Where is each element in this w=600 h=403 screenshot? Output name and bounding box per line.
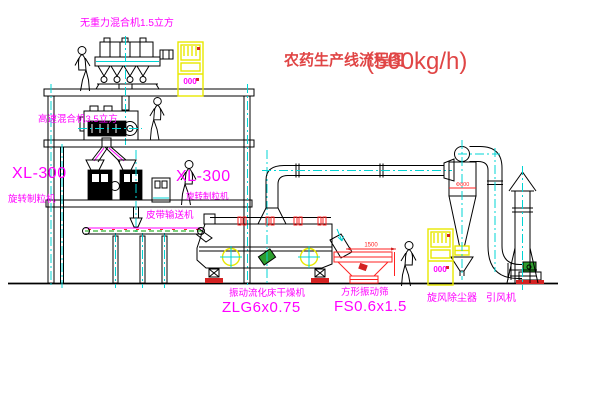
label-sifter-name: 方形振动筛 [341,286,389,298]
label-granulator-right-model: XL-300 [176,168,231,185]
person-figures [75,47,416,287]
label-gravity-mixer: 无重力混合机1.5立方 [80,16,174,29]
control-cabinet-left: 000 [178,42,203,96]
cabinet-left-display: 000 [183,77,197,86]
sifter-width-dim: 1500 [364,243,378,249]
belt-conveyor-drawing [83,228,213,243]
distribution-chutes [92,138,126,162]
exhaust-duct [258,164,452,225]
label-dryer-name: 振动流化床干燥机 [229,287,306,299]
label-fan: 引风机 [486,291,516,304]
label-belt-conveyor: 皮带输送机 [146,209,194,221]
label-cyclone: 旋风除尘器 [427,291,477,304]
person-top-floor [75,47,90,92]
label-high-speed-mixer: 高速混合机3.5立方 [38,113,118,125]
person-second-floor [150,97,164,139]
control-cabinet-right: 000 [428,229,453,285]
cad-canvas: 000 [0,0,600,403]
square-sifter-drawing: 1500 [330,229,396,283]
cabinet-right-display: 000 [433,265,447,274]
person-ground [401,242,416,287]
label-granulator-right-name: 旋转制粒机 [186,191,229,201]
label-granulator-left-model: XL-300 [12,165,67,182]
label-granulator-left-name: 旋转制粒机 [8,193,56,205]
drawing-title: 农药生产线流程图 (500kg/h) [283,48,467,75]
title-capacity: (500kg/h) [366,48,467,75]
label-dryer-model: ZLG6x0.75 [222,299,301,316]
label-sifter-model: FS0.6x1.5 [334,298,407,315]
process-flow-diagram: 000 [0,0,600,403]
